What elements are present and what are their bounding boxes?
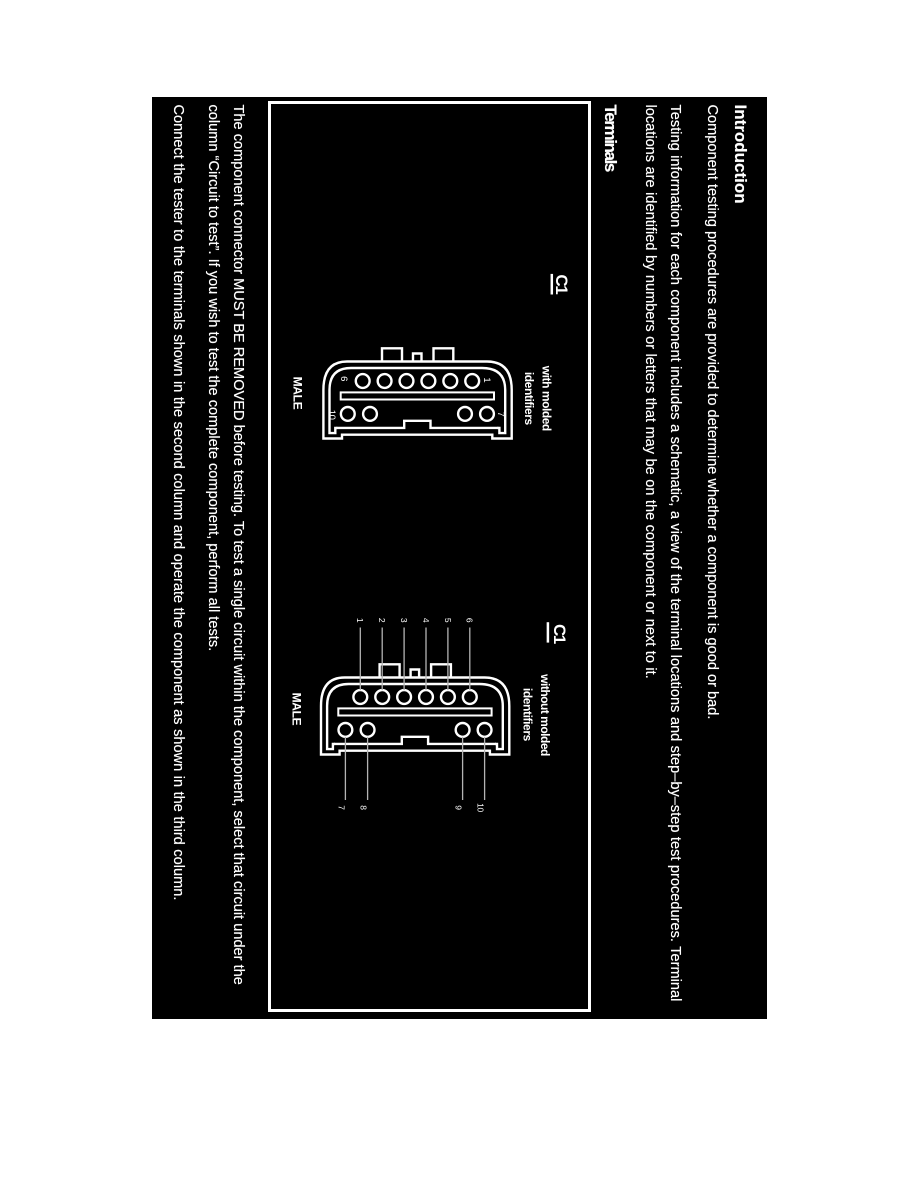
- svg-text:MALE: MALE: [290, 693, 304, 726]
- svg-text:8: 8: [359, 805, 369, 810]
- svg-text:2: 2: [377, 618, 387, 623]
- svg-text:identifiers: identifiers: [521, 688, 535, 742]
- svg-text:6: 6: [465, 618, 475, 623]
- svg-text:10: 10: [476, 803, 486, 812]
- svg-text:4: 4: [421, 618, 431, 623]
- svg-text:1: 1: [481, 377, 492, 382]
- svg-text:1: 1: [355, 618, 365, 623]
- svg-text:7: 7: [495, 412, 506, 417]
- svg-text:5: 5: [443, 618, 453, 623]
- svg-text:9: 9: [454, 805, 464, 810]
- svg-text:6: 6: [338, 376, 349, 381]
- svg-text:identifiers: identifiers: [522, 372, 536, 426]
- svg-text:C1: C1: [552, 274, 571, 294]
- svg-text:10: 10: [326, 410, 337, 420]
- svg-text:MALE: MALE: [290, 377, 304, 410]
- svg-text:without molded: without molded: [538, 673, 552, 756]
- svg-text:3: 3: [399, 618, 409, 623]
- svg-text:with molded: with molded: [539, 365, 553, 431]
- svg-text:7: 7: [337, 805, 347, 810]
- svg-text:C1: C1: [550, 624, 569, 644]
